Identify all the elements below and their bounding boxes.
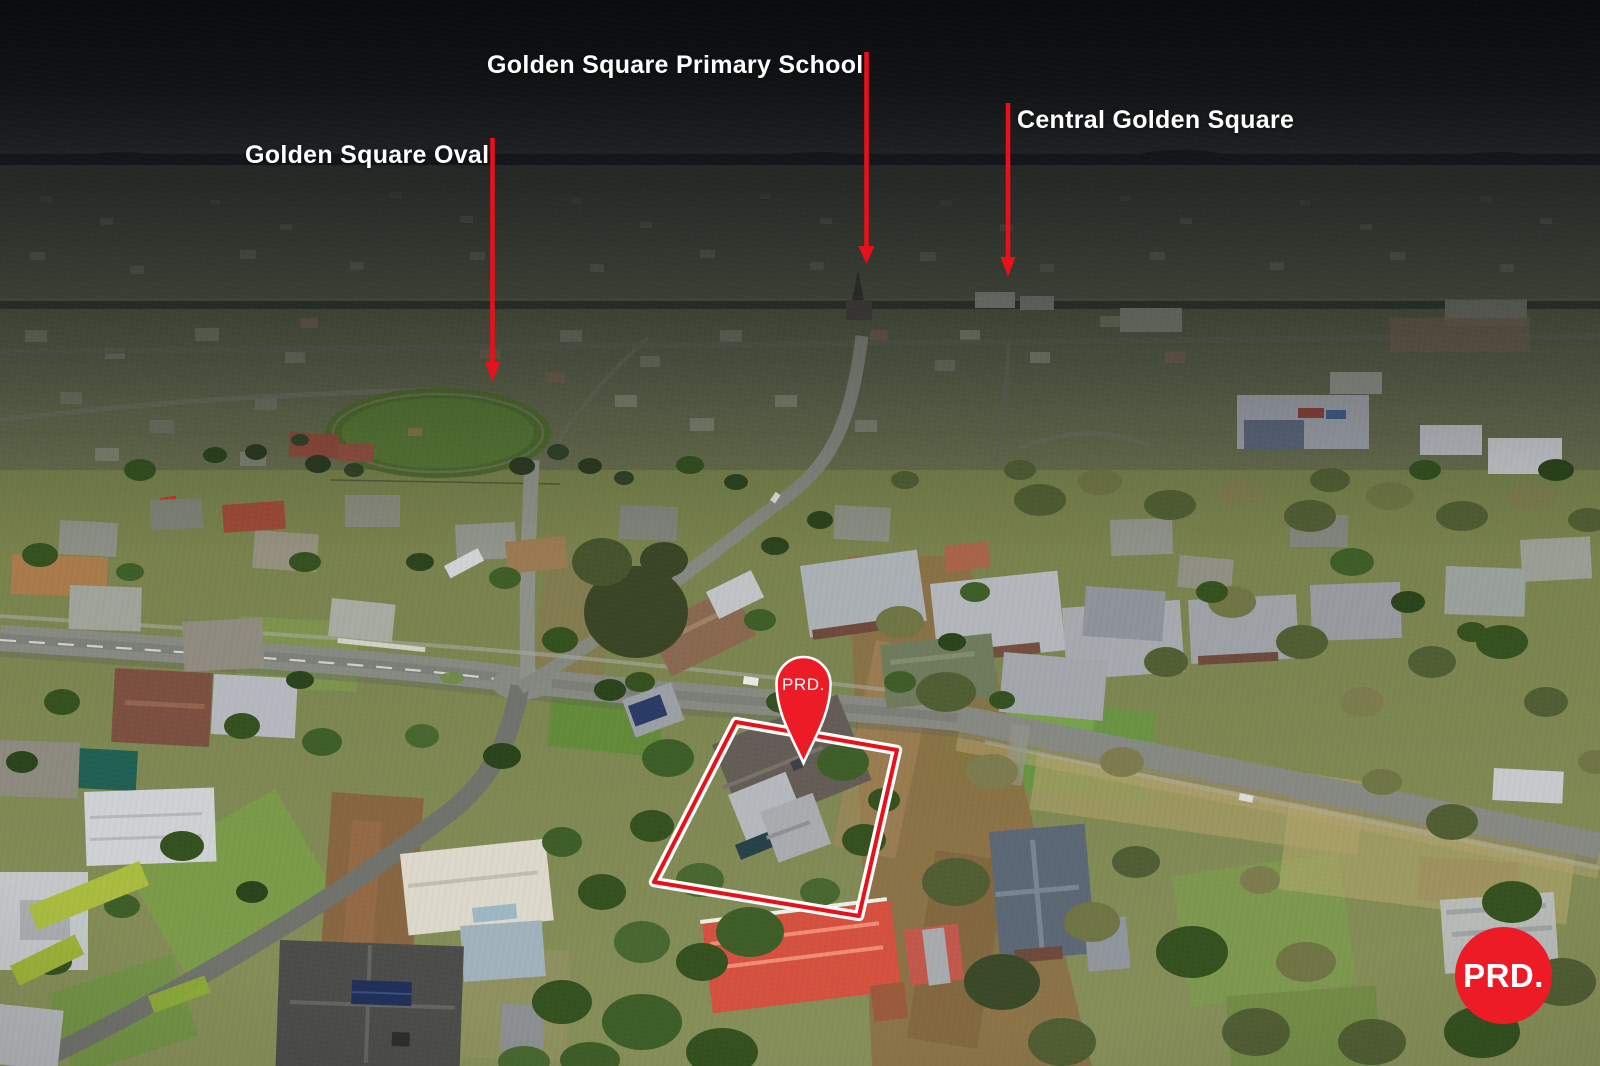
- arrowhead-icon: [1001, 257, 1016, 277]
- arrowhead-icon: [485, 362, 500, 382]
- arrow-golden-square-oval: [485, 138, 500, 382]
- aerial-photo-stage: PRD. Golden Square Primary School Centra…: [0, 0, 1600, 1066]
- brand-logo-text: PRD.: [1463, 957, 1544, 995]
- property-boundary: [654, 722, 897, 916]
- arrow-primary-school: [859, 52, 875, 264]
- label-golden-square-primary-school: Golden Square Primary School: [487, 51, 864, 80]
- location-pin: PRD.: [777, 657, 831, 763]
- arrowhead-icon: [859, 246, 875, 264]
- brand-logo: PRD.: [1455, 927, 1552, 1024]
- label-central-golden-square: Central Golden Square: [1017, 106, 1294, 135]
- arrow-central-golden-square: [1001, 103, 1016, 277]
- label-golden-square-oval: Golden Square Oval: [245, 141, 489, 170]
- pin-label: PRD.: [782, 675, 825, 694]
- annotation-layer: PRD.: [0, 0, 1600, 1066]
